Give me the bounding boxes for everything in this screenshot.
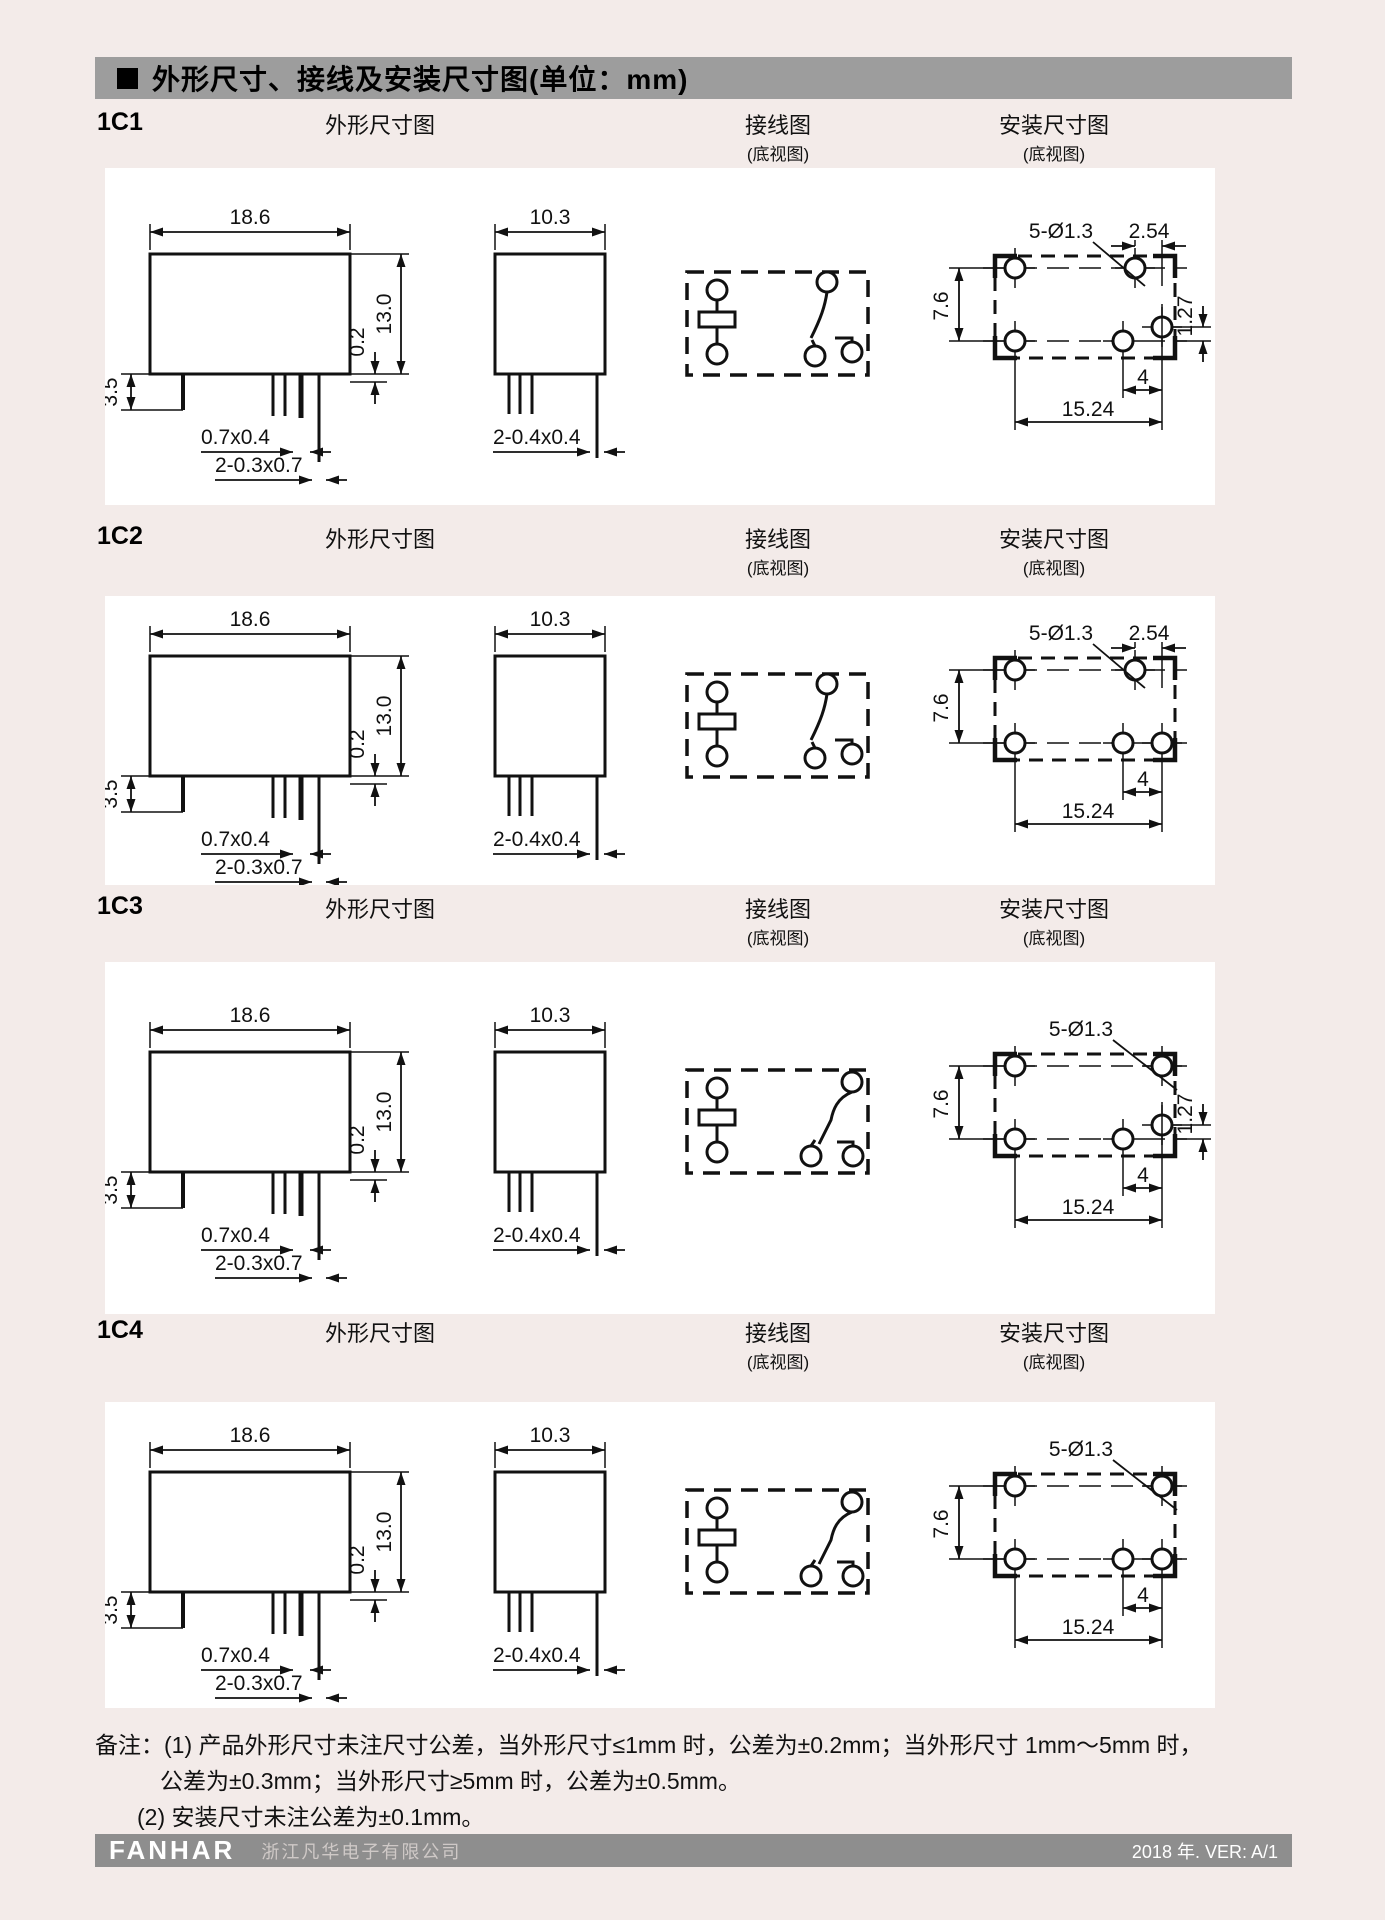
- drawing-panel-1c1: 18.6 10.3 13.0 0.2 3.5 0.7x0.4 2-0.3x0.7…: [105, 168, 1215, 505]
- column-title-outline: 外形尺寸图: [325, 1316, 435, 1348]
- dim-hole-pitch-x: 2.54: [1129, 220, 1170, 243]
- dim-pin-span-large: 15.24: [1062, 1616, 1115, 1639]
- side-view-drawing: [493, 1022, 625, 1256]
- drawing-panel-1c4: 18.6 10.3 13.0 0.2 3.5 0.7x0.4 2-0.3x0.7…: [105, 1402, 1215, 1708]
- dim-front-width: 18.6: [230, 1004, 271, 1027]
- dim-holes: 5-Ø1.3: [1029, 622, 1093, 645]
- column-title-outline: 外形尺寸图: [325, 522, 435, 554]
- column-title-mounting: 安装尺寸图: [999, 892, 1109, 924]
- column-sub-bottom-view: (底视图): [1023, 140, 1085, 165]
- dim-row-spacing: 7.6: [930, 693, 953, 722]
- section-id-1c2: 1C2: [97, 522, 143, 551]
- section-id-1c4: 1C4: [97, 1316, 143, 1345]
- dim-pin-span-large: 15.24: [1062, 1196, 1115, 1219]
- dim-pin-length: 3.5: [105, 1175, 122, 1204]
- section-id-1c3: 1C3: [97, 892, 143, 921]
- drawing-panel-1c2: 18.6 10.3 13.0 0.2 3.5 0.7x0.4 2-0.3x0.7…: [105, 596, 1215, 885]
- column-sub-bottom-view: (底视图): [1023, 924, 1085, 949]
- column-title-mounting: 安装尺寸图: [999, 108, 1109, 140]
- dim-height: 13.0: [373, 294, 396, 335]
- dim-row-spacing: 7.6: [930, 291, 953, 320]
- dim-front-width: 18.6: [230, 1424, 271, 1447]
- dim-pin-size-b: 2-0.3x0.7: [215, 856, 303, 879]
- column-title-wiring: 接线图: [745, 1316, 811, 1348]
- dim-pin-size-a: 0.7x0.4: [201, 828, 270, 851]
- dim-height: 13.0: [373, 1512, 396, 1553]
- dim-row-spacing: 7.6: [930, 1509, 953, 1538]
- dim-pin-size-c: 2-0.4x0.4: [493, 828, 581, 851]
- dim-side-width: 10.3: [530, 1424, 571, 1447]
- dim-pin-length: 3.5: [105, 1595, 122, 1624]
- column-sub-bottom-view: (底视图): [747, 554, 809, 579]
- wiring-contacts: [801, 1492, 863, 1586]
- column-sub-bottom-view: (底视图): [747, 140, 809, 165]
- company-name: 浙江凡华电子有限公司: [261, 1838, 461, 1864]
- wiring-contacts: [805, 674, 862, 768]
- dim-pin-length: 3.5: [105, 779, 122, 808]
- dim-pin-size-b: 2-0.3x0.7: [215, 1252, 303, 1275]
- footer-bar: FANHAR 浙江凡华电子有限公司 2018 年. VER: A/1: [95, 1834, 1292, 1867]
- column-sub-bottom-view: (底视图): [747, 924, 809, 949]
- dim-standoff: 0.2: [346, 729, 369, 758]
- dim-side-width: 10.3: [530, 206, 571, 229]
- dim-front-width: 18.6: [230, 206, 271, 229]
- dim-pin-length: 3.5: [105, 377, 122, 406]
- column-sub-bottom-view: (底视图): [1023, 1348, 1085, 1373]
- note-line-3: (2) 安装尺寸未注公差为±0.1mm。: [137, 1798, 484, 1832]
- mounting-top-right-hole: [1093, 642, 1186, 690]
- dim-pin-span-small: 4: [1137, 1164, 1149, 1187]
- column-title-mounting: 安装尺寸图: [999, 522, 1109, 554]
- dim-standoff: 0.2: [346, 1125, 369, 1154]
- dim-holes: 5-Ø1.3: [1029, 220, 1093, 243]
- section-id-1c1: 1C1: [97, 108, 143, 137]
- dim-pin-size-c: 2-0.4x0.4: [493, 426, 581, 449]
- column-title-outline: 外形尺寸图: [325, 108, 435, 140]
- document-version: 2018 年. VER: A/1: [1132, 1838, 1278, 1864]
- dim-pin-size-a: 0.7x0.4: [201, 1224, 270, 1247]
- column-title-wiring: 接线图: [745, 522, 811, 554]
- dim-pin-size-b: 2-0.3x0.7: [215, 1672, 303, 1695]
- dim-holes: 5-Ø1.3: [1049, 1018, 1113, 1041]
- dim-hole-offset-y: 1.27: [1174, 296, 1197, 337]
- dim-pin-size-c: 2-0.4x0.4: [493, 1644, 581, 1667]
- page-title: 外形尺寸、接线及安装尺寸图(单位：mm): [152, 58, 688, 98]
- dim-pin-span-small: 4: [1137, 366, 1149, 389]
- column-title-mounting: 安装尺寸图: [999, 1316, 1109, 1348]
- dim-front-width: 18.6: [230, 608, 271, 631]
- dim-pin-span-small: 4: [1137, 1584, 1149, 1607]
- dim-hole-offset-y: 1.27: [1174, 1094, 1197, 1135]
- dim-pin-size-b: 2-0.3x0.7: [215, 454, 303, 477]
- section-marker-icon: [117, 68, 138, 89]
- dim-standoff: 0.2: [346, 1545, 369, 1574]
- dim-height: 13.0: [373, 1092, 396, 1133]
- dim-side-width: 10.3: [530, 608, 571, 631]
- mounting-top-right-hole: [1113, 1460, 1182, 1510]
- wiring-diagram: [687, 674, 868, 777]
- column-sub-bottom-view: (底视图): [747, 1348, 809, 1373]
- dim-hole-pitch-x: 2.54: [1129, 622, 1170, 645]
- dim-standoff: 0.2: [346, 327, 369, 356]
- side-view-drawing: [493, 224, 625, 458]
- side-view-drawing: [493, 626, 625, 860]
- column-sub-bottom-view: (底视图): [1023, 554, 1085, 579]
- dim-height: 13.0: [373, 696, 396, 737]
- wiring-contacts: [801, 1072, 863, 1166]
- wiring-diagram: [687, 1070, 868, 1173]
- dim-pin-span-small: 4: [1137, 768, 1149, 791]
- page-title-bar: 外形尺寸、接线及安装尺寸图(单位：mm): [95, 57, 1292, 99]
- column-title-wiring: 接线图: [745, 108, 811, 140]
- column-title-outline: 外形尺寸图: [325, 892, 435, 924]
- dim-pin-size-a: 0.7x0.4: [201, 426, 270, 449]
- note-line-1: 备注：(1) 产品外形尺寸未注尺寸公差，当外形尺寸≤1mm 时，公差为±0.2m…: [95, 1726, 1203, 1760]
- drawing-panel-1c3: 18.6 10.3 13.0 0.2 3.5 0.7x0.4 2-0.3x0.7…: [105, 962, 1215, 1314]
- dim-row-spacing: 7.6: [930, 1089, 953, 1118]
- dim-holes: 5-Ø1.3: [1049, 1438, 1113, 1461]
- dim-pin-size-a: 0.7x0.4: [201, 1644, 270, 1667]
- mounting-top-right-hole: [1093, 240, 1186, 288]
- note-line-2: 公差为±0.3mm；当外形尺寸≥5mm 时，公差为±0.5mm。: [160, 1762, 741, 1796]
- dim-side-width: 10.3: [530, 1004, 571, 1027]
- company-logo: FANHAR: [109, 1835, 235, 1866]
- mounting-top-right-hole: [1113, 1040, 1182, 1090]
- side-view-drawing: [493, 1442, 625, 1676]
- dim-pin-span-large: 15.24: [1062, 398, 1115, 421]
- wiring-contacts: [805, 272, 862, 366]
- wiring-diagram: [687, 1490, 868, 1593]
- column-title-wiring: 接线图: [745, 892, 811, 924]
- wiring-diagram: [687, 272, 868, 375]
- dim-pin-span-large: 15.24: [1062, 800, 1115, 823]
- dim-pin-size-c: 2-0.4x0.4: [493, 1224, 581, 1247]
